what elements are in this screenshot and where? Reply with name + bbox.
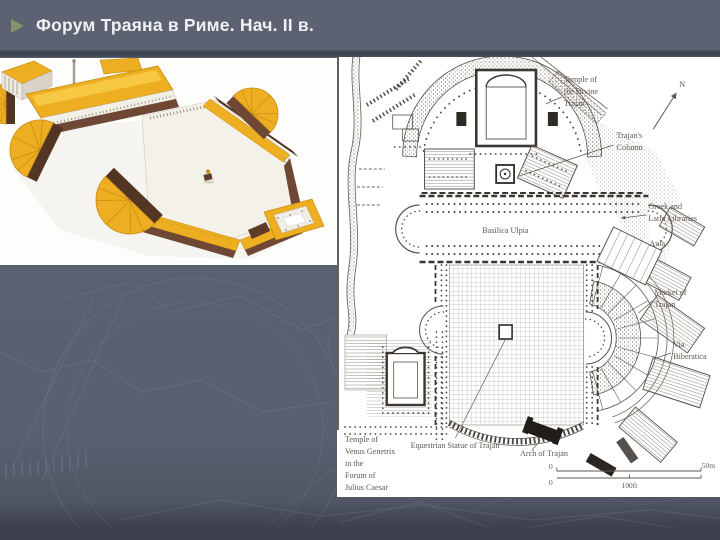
header-divider — [0, 50, 720, 57]
plan-label-aula: Aula — [649, 239, 665, 248]
plan-label-equestrian-statue: Equestrian Statue of Trajan — [411, 441, 500, 450]
slide-title: Форум Траяна в Риме. Нач. II в. — [36, 15, 314, 36]
greek-library — [425, 149, 475, 189]
plan-label-arch: Arch of Trajan — [520, 449, 568, 458]
scale-100ft: 100ft — [622, 481, 639, 490]
arrow-bullet-icon — [11, 19, 24, 33]
bottom-shadow — [0, 500, 720, 528]
trajans-column-plan — [496, 165, 514, 183]
forum-3d-reconstruction-image — [0, 58, 337, 265]
forum-plan-image: N Temple of the Divine Trajan Trajan's C… — [337, 57, 720, 497]
scale-zero-feet: 0 — [549, 478, 553, 487]
scale-50m: 50m — [702, 461, 715, 470]
north-label: N — [679, 80, 685, 89]
plan-label-basilica-ulpia: Basilica Ulpia — [482, 226, 529, 235]
forum-courtyard — [435, 265, 597, 425]
presentation-slide: Форум Траяна в Риме. Нач. II в. — [0, 0, 720, 540]
bottom-band — [0, 528, 720, 540]
scale-zero-meters: 0 — [549, 462, 553, 471]
slide-header: Форум Траяна в Риме. Нач. II в. — [0, 0, 720, 50]
